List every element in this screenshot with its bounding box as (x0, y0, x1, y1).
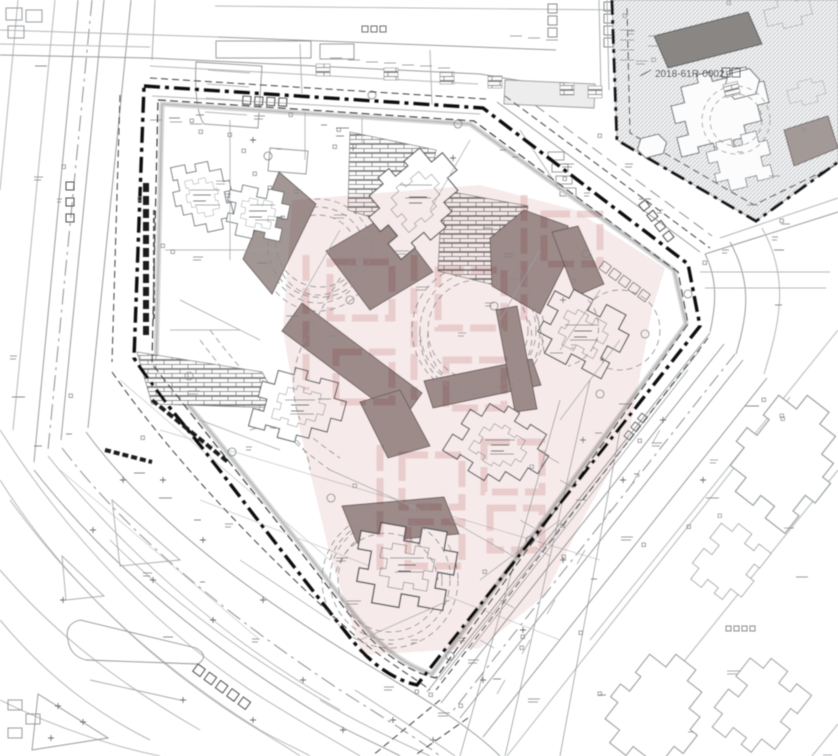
svg-text:2018-61R-0002: 2018-61R-0002 (655, 69, 725, 80)
